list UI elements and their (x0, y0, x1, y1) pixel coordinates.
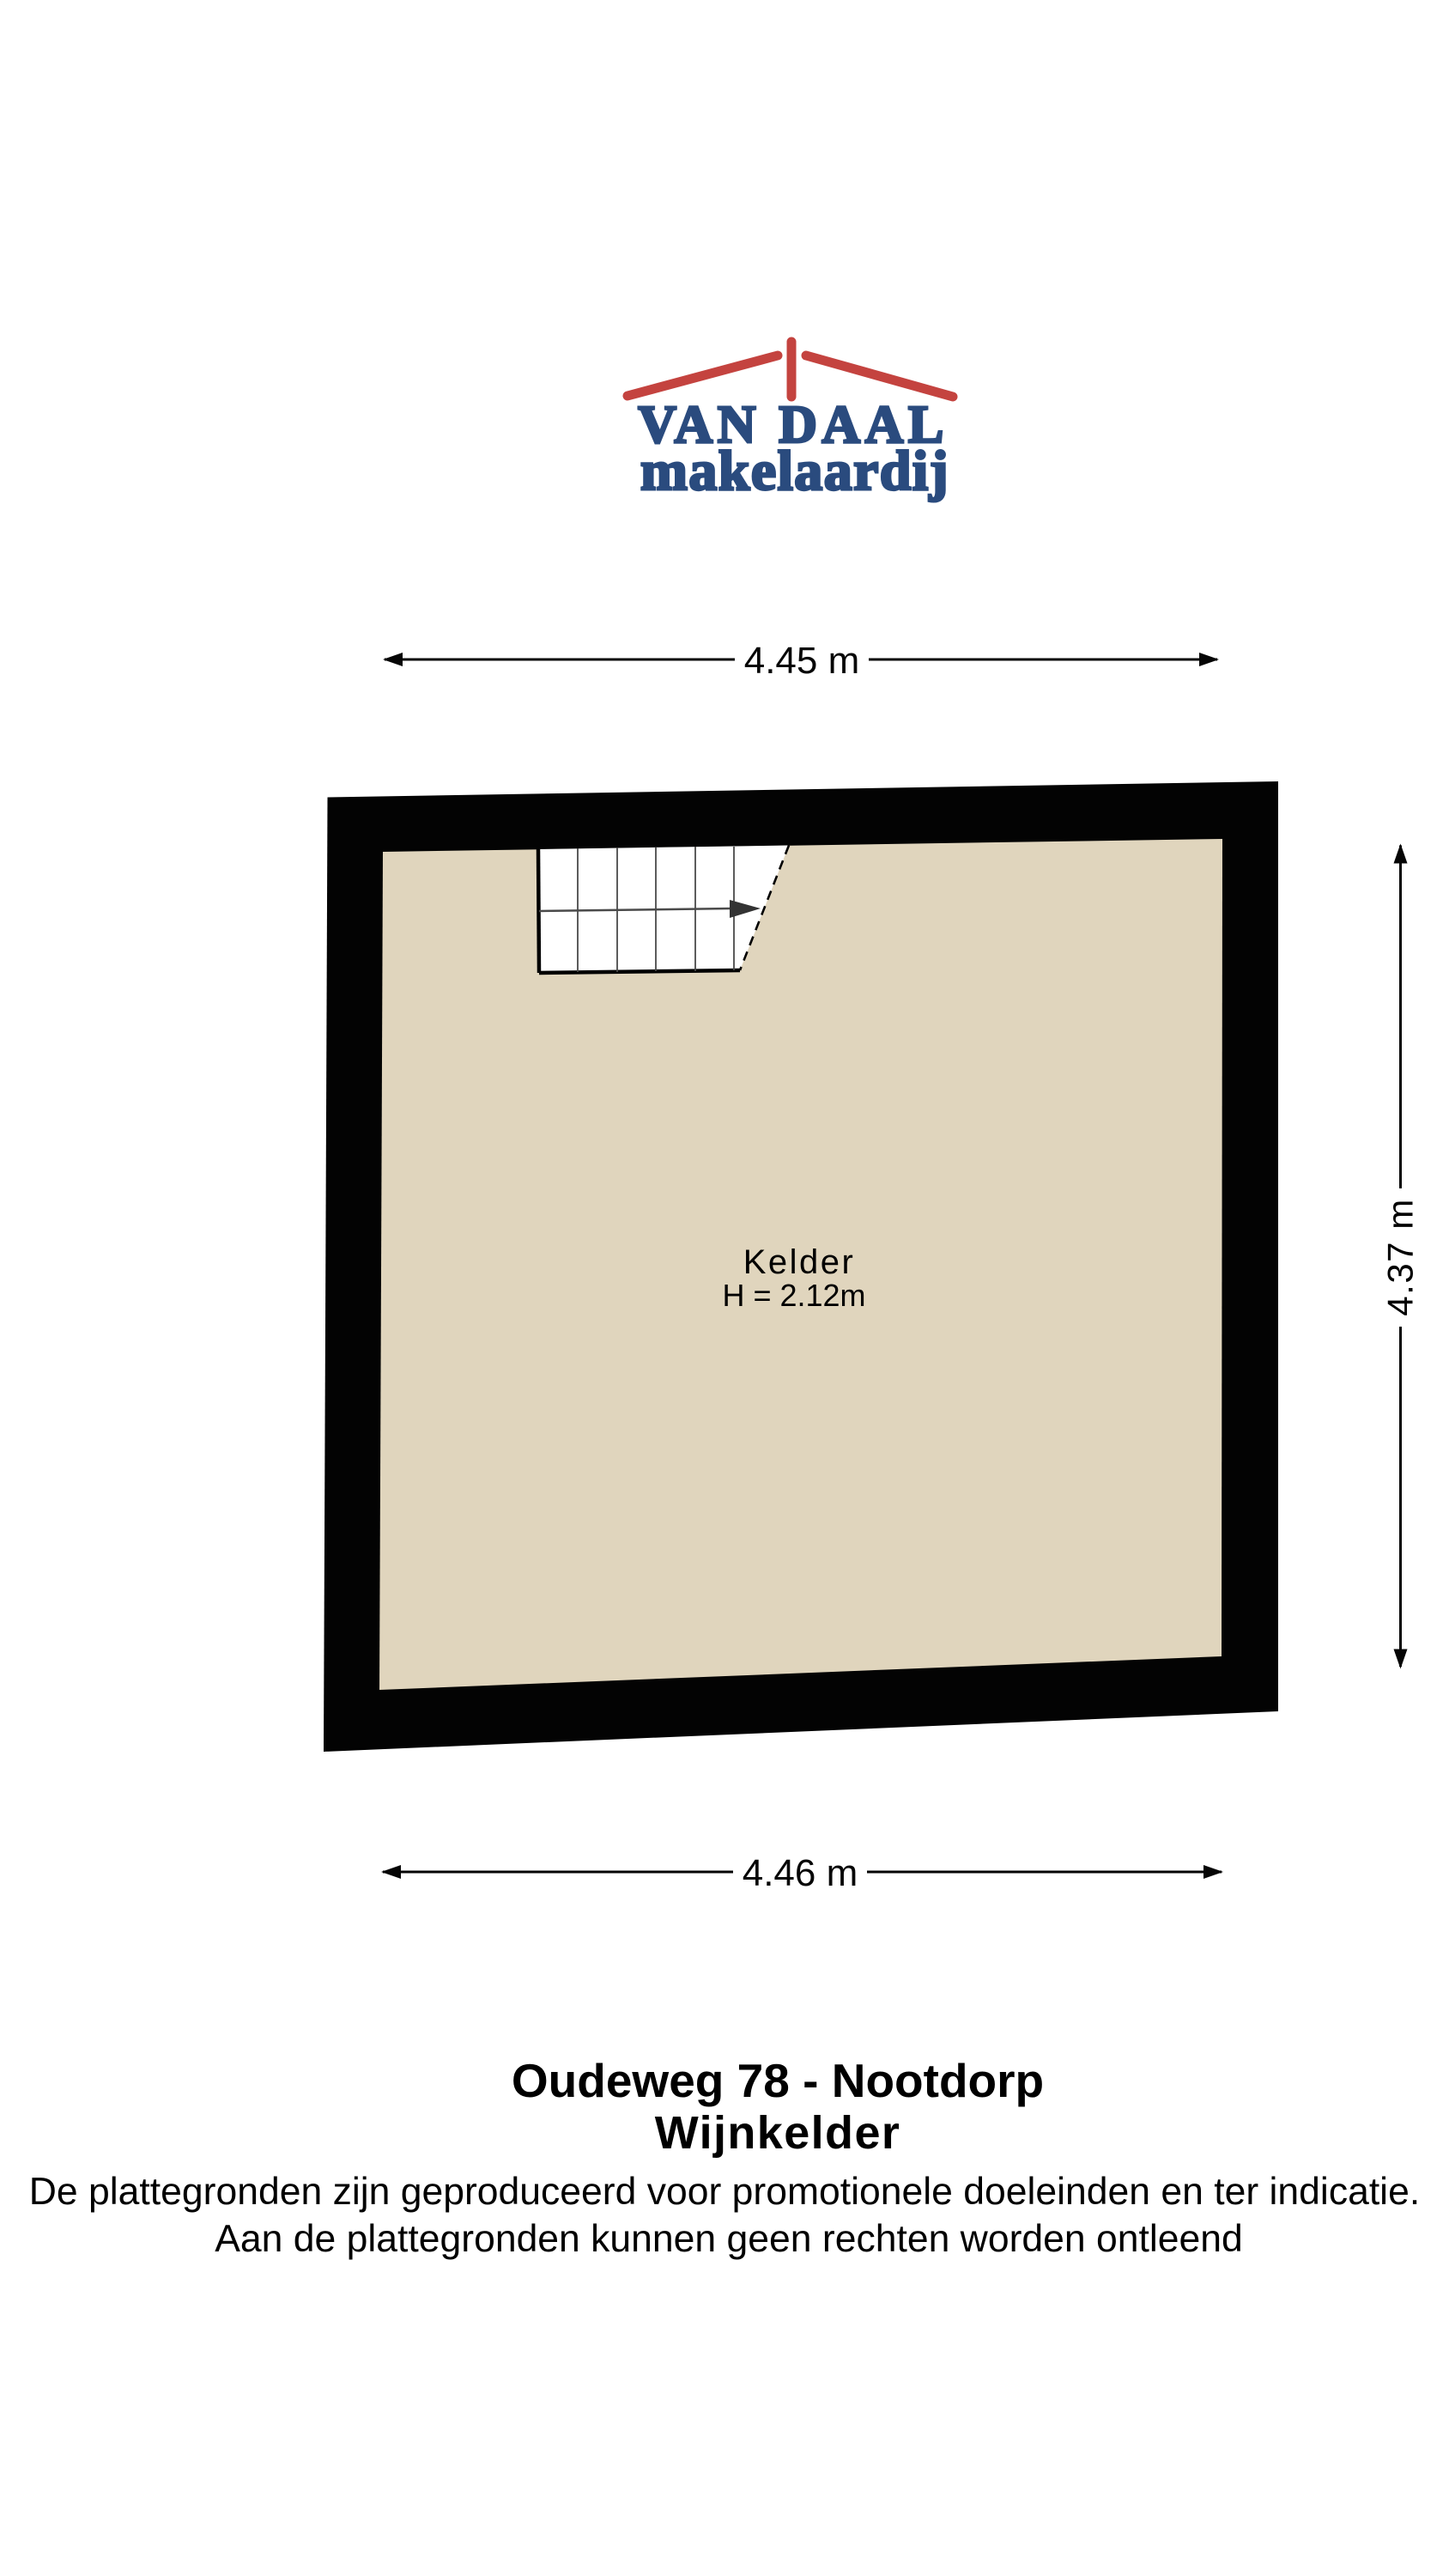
svg-text:4.46 m: 4.46 m (743, 1852, 858, 1894)
svg-text:Wijnkelder: Wijnkelder (655, 2107, 901, 2159)
svg-text:Aan de plattegronden kunnen ge: Aan de plattegronden kunnen geen rechten… (215, 2218, 1243, 2260)
svg-text:4.45 m: 4.45 m (744, 640, 860, 682)
svg-text:De plattegronden zijn geproduc: De plattegronden zijn geproduceerd voor … (29, 2171, 1420, 2213)
svg-text:Oudeweg 78 - Nootdorp: Oudeweg 78 - Nootdorp (512, 2054, 1044, 2107)
svg-text:makelaardij: makelaardij (640, 440, 949, 502)
svg-text:Kelder: Kelder (743, 1243, 856, 1281)
svg-text:4.37 m: 4.37 m (1380, 1198, 1421, 1315)
svg-text:H = 2.12m: H = 2.12m (722, 1278, 865, 1313)
